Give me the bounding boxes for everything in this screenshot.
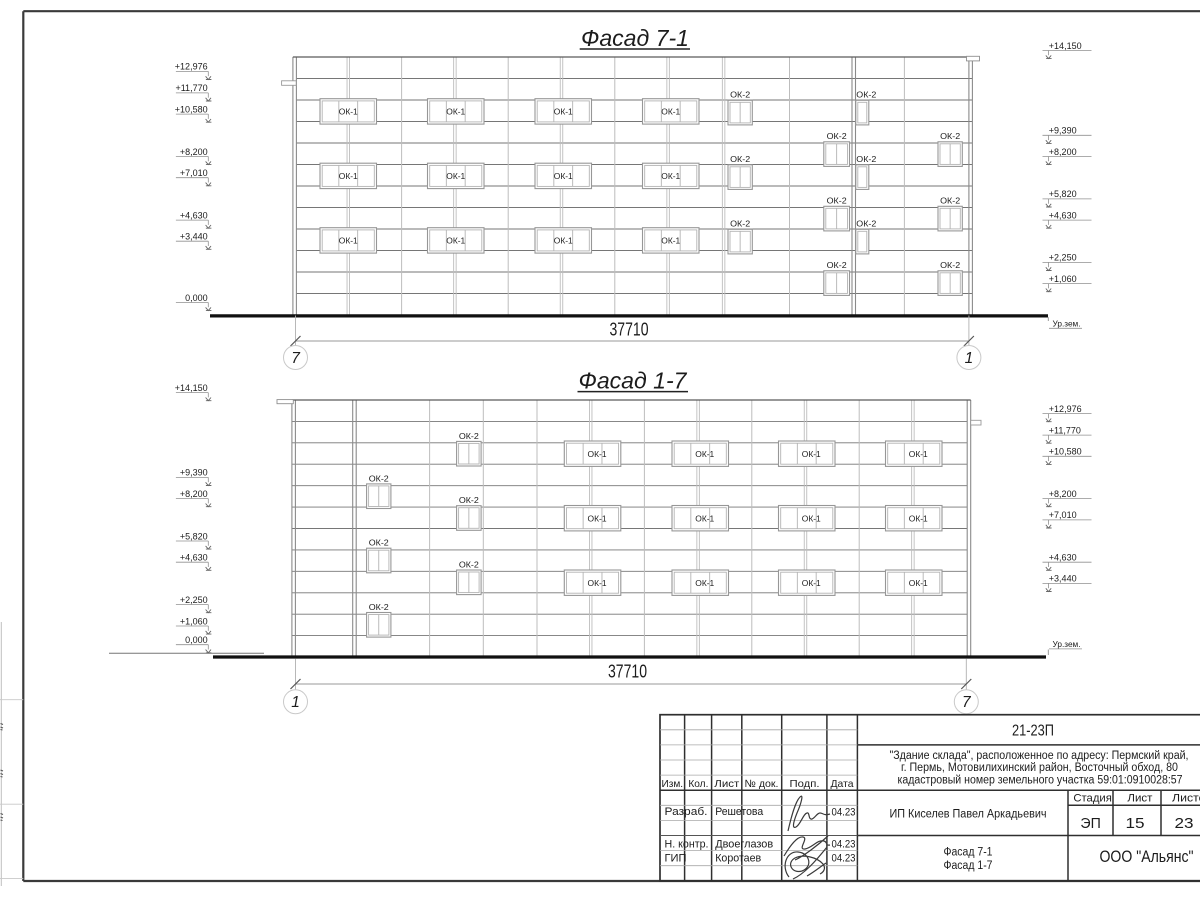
svg-text:04.23: 04.23	[832, 853, 856, 865]
svg-text:ОК-1: ОК-1	[661, 171, 680, 181]
svg-text:Фасад 1-7: Фасад 1-7	[944, 860, 993, 872]
svg-text:ОК-1: ОК-1	[446, 107, 465, 117]
svg-text:0,000: 0,000	[185, 635, 208, 645]
svg-text:ОК-2: ОК-2	[730, 90, 750, 100]
svg-text:ОК-2: ОК-2	[827, 260, 847, 270]
svg-text:+7,010: +7,010	[1049, 510, 1077, 520]
svg-text:Фасад 7-1: Фасад 7-1	[944, 847, 993, 859]
svg-text:ОК-1: ОК-1	[446, 236, 465, 246]
svg-text:Фасад 7-1: Фасад 7-1	[581, 25, 689, 51]
svg-text:ОК-1: ОК-1	[661, 107, 680, 117]
svg-text:+7,010: +7,010	[180, 168, 208, 178]
svg-text:ОК-2: ОК-2	[369, 538, 389, 548]
svg-text:+4,630: +4,630	[180, 210, 208, 220]
svg-text:Решетова: Решетова	[715, 806, 764, 818]
svg-text:+8,200: +8,200	[1049, 147, 1077, 157]
svg-text:ОК-2: ОК-2	[459, 431, 479, 441]
svg-text:ОК-2: ОК-2	[827, 196, 847, 206]
svg-text:ОК-1: ОК-1	[588, 449, 607, 459]
svg-text:15: 15	[1126, 815, 1145, 832]
svg-text:ОК-1: ОК-1	[661, 236, 680, 246]
svg-text:ОК-2: ОК-2	[856, 219, 876, 229]
svg-text:ГИП: ГИП	[665, 853, 687, 865]
svg-text:+11,770: +11,770	[1049, 425, 1081, 435]
svg-text:ОК-2: ОК-2	[459, 559, 479, 569]
svg-text:Двоеглазов: Двоеглазов	[715, 839, 773, 851]
svg-text:ОК-1: ОК-1	[446, 171, 465, 181]
svg-text:ОК-1: ОК-1	[588, 578, 607, 588]
svg-text:04.23: 04.23	[832, 838, 856, 850]
svg-text:ОК-2: ОК-2	[369, 473, 389, 483]
svg-text:+4,630: +4,630	[180, 553, 208, 563]
svg-text:21-23П: 21-23П	[1012, 723, 1054, 740]
svg-text:Фасад 1-7: Фасад 1-7	[579, 367, 688, 393]
svg-text:ОК-2: ОК-2	[369, 602, 389, 612]
svg-text:Ур.зем.: Ур.зем.	[1053, 639, 1081, 649]
svg-text:23: 23	[1175, 815, 1194, 832]
svg-text:+8,200: +8,200	[1049, 489, 1077, 499]
svg-text:ОК-1: ОК-1	[695, 449, 714, 459]
svg-text:ОК-2: ОК-2	[856, 154, 876, 164]
svg-text:+2,250: +2,250	[1049, 253, 1077, 263]
svg-text:+10,580: +10,580	[175, 104, 208, 114]
svg-text:1: 1	[291, 694, 300, 711]
svg-text:кадастровый номер земельного у: кадастровый номер земельного участка 59:…	[898, 775, 1183, 787]
svg-text:ОК-1: ОК-1	[554, 236, 573, 246]
svg-text:+3,440: +3,440	[180, 232, 208, 242]
svg-text:+11,770: +11,770	[175, 83, 207, 93]
svg-text:ОК-2: ОК-2	[730, 219, 750, 229]
svg-text:ОК-1: ОК-1	[588, 513, 607, 523]
svg-text:Стадия: Стадия	[1073, 793, 1112, 805]
svg-text:+14,150: +14,150	[1049, 41, 1082, 51]
svg-text:+5,820: +5,820	[1049, 189, 1077, 199]
svg-text:ОК-2: ОК-2	[940, 131, 960, 141]
svg-text:1: 1	[965, 350, 974, 367]
svg-text:ОК-2: ОК-2	[459, 495, 479, 505]
svg-text:г. Пермь, Мотовилихинский райо: г. Пермь, Мотовилихинский район, Восточн…	[901, 762, 1178, 774]
svg-text:ОК-2: ОК-2	[827, 131, 847, 141]
svg-text:ОК-1: ОК-1	[909, 578, 928, 588]
svg-text:+14,150: +14,150	[175, 383, 208, 393]
svg-text:+2,250: +2,250	[180, 595, 208, 605]
svg-text:"Здание склада", расположенное: "Здание склада", расположенное по адресу…	[890, 750, 1189, 762]
svg-text:ОК-2: ОК-2	[856, 90, 876, 100]
svg-text:ООО "Альянс": ООО "Альянс"	[1100, 848, 1194, 866]
svg-text:ОК-1: ОК-1	[339, 236, 358, 246]
svg-text:Лист: Лист	[714, 778, 739, 790]
svg-text:Подп.: Подп.	[790, 778, 820, 790]
svg-text:+12,976: +12,976	[1049, 404, 1082, 414]
svg-text:ОК-2: ОК-2	[730, 154, 750, 164]
svg-text:+5,820: +5,820	[180, 531, 208, 541]
svg-text:№ док.: № док.	[745, 778, 779, 790]
svg-text:ОК-1: ОК-1	[802, 513, 821, 523]
svg-text:ОК-1: ОК-1	[554, 107, 573, 117]
svg-text:Дата: Дата	[831, 778, 854, 790]
svg-text:ОК-1: ОК-1	[909, 449, 928, 459]
svg-text:ОК-1: ОК-1	[802, 449, 821, 459]
svg-text:ОК-1: ОК-1	[339, 107, 358, 117]
svg-text:+9,390: +9,390	[1049, 126, 1077, 136]
svg-text:ОК-2: ОК-2	[940, 196, 960, 206]
svg-text:+4,630: +4,630	[1049, 210, 1077, 220]
svg-text:Коротаев: Коротаев	[715, 853, 761, 865]
svg-text:ЭП: ЭП	[1080, 815, 1100, 832]
svg-text:ОК-1: ОК-1	[339, 171, 358, 181]
svg-text:37710: 37710	[610, 319, 649, 340]
svg-text:+3,440: +3,440	[1049, 574, 1077, 584]
svg-text:+10,580: +10,580	[1049, 447, 1082, 457]
svg-text:7: 7	[291, 350, 301, 367]
svg-text:+1,060: +1,060	[180, 616, 208, 626]
svg-text:Разраб.: Разраб.	[665, 806, 708, 818]
svg-text:+4,630: +4,630	[1049, 553, 1077, 563]
svg-text:ОК-1: ОК-1	[695, 513, 714, 523]
svg-text:ОК-2: ОК-2	[940, 260, 960, 270]
svg-text:7: 7	[962, 694, 972, 711]
svg-text:37710: 37710	[608, 661, 647, 682]
svg-text:ИП Киселев Павел Аркадьевич: ИП Киселев Павел Аркадьевич	[890, 809, 1047, 821]
svg-text:Кол.: Кол.	[688, 778, 708, 790]
svg-text:Ур.зем.: Ур.зем.	[1053, 319, 1081, 329]
svg-text:Лист: Лист	[1127, 793, 1152, 805]
svg-text:ОК-1: ОК-1	[554, 171, 573, 181]
svg-text:Листов: Листов	[1172, 793, 1200, 805]
svg-text:ОК-1: ОК-1	[695, 578, 714, 588]
svg-text:ОК-1: ОК-1	[909, 513, 928, 523]
svg-text:+8,200: +8,200	[180, 489, 208, 499]
svg-text:ОК-1: ОК-1	[802, 578, 821, 588]
svg-text:+12,976: +12,976	[175, 62, 208, 72]
svg-text:+1,060: +1,060	[1049, 274, 1077, 284]
svg-text:04.23: 04.23	[832, 806, 856, 818]
svg-text:Изм.: Изм.	[662, 778, 684, 790]
svg-text:+9,390: +9,390	[180, 468, 208, 478]
svg-text:Н. контр.: Н. контр.	[665, 839, 709, 851]
svg-text:0,000: 0,000	[185, 293, 208, 303]
svg-text:+8,200: +8,200	[180, 147, 208, 157]
